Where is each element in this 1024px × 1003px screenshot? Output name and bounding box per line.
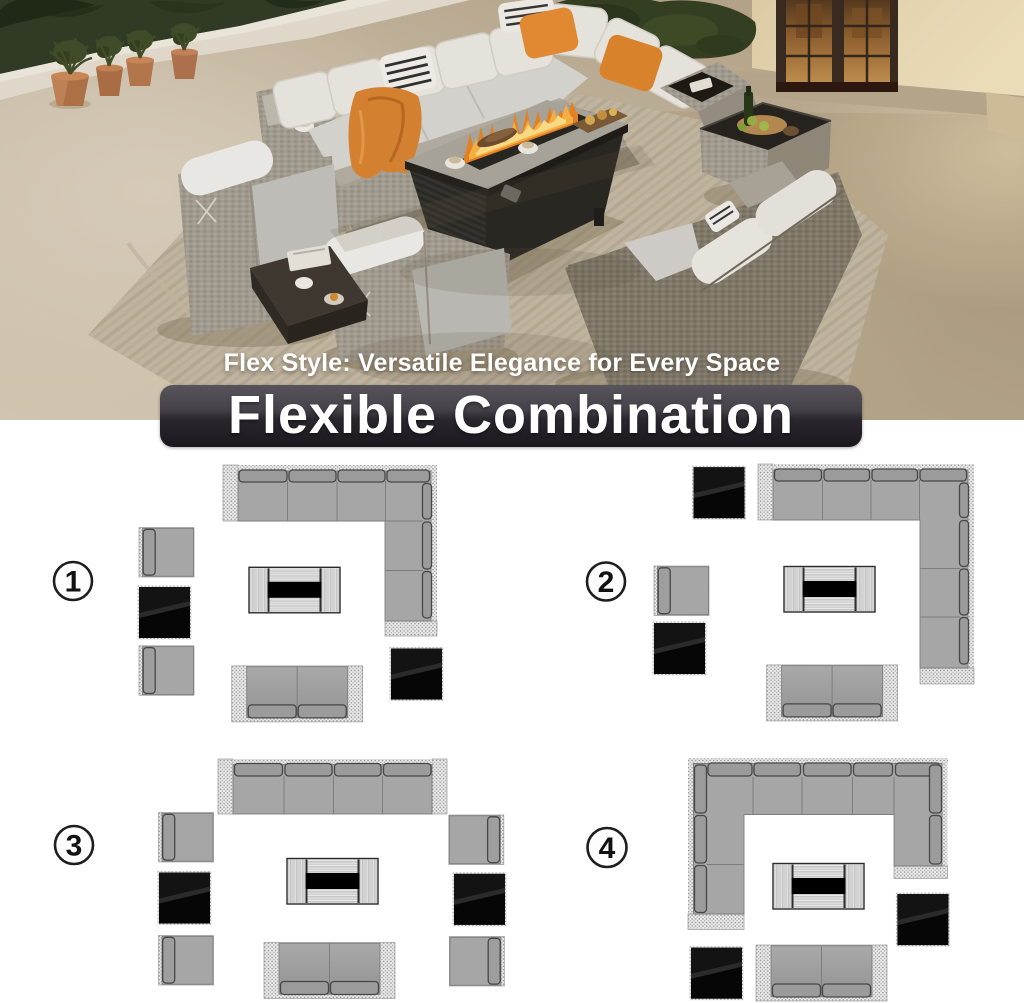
- svg-text:1: 1: [65, 566, 82, 599]
- svg-text:4: 4: [599, 832, 616, 865]
- svg-text:3: 3: [66, 830, 83, 863]
- svg-text:2: 2: [598, 566, 615, 599]
